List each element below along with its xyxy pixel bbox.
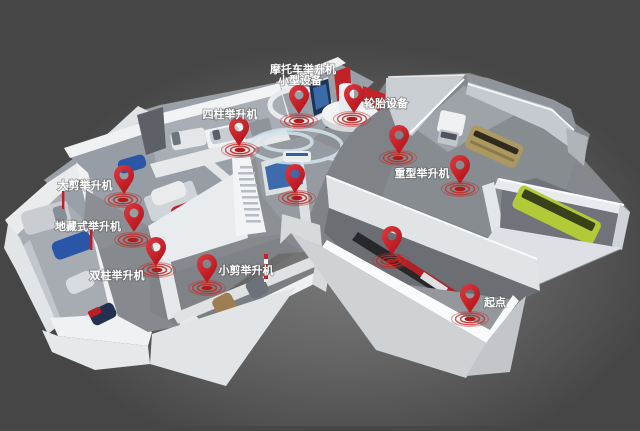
svg-text:摩托车举升机: 摩托车举升机 [270, 62, 336, 76]
svg-text:重型举升机: 重型举升机 [395, 166, 450, 180]
svg-text:起点: 起点 [483, 295, 506, 309]
svg-text:轮胎设备: 轮胎设备 [364, 96, 409, 110]
svg-text:地藏式举升机: 地藏式举升机 [55, 219, 121, 233]
svg-text:四柱举升机: 四柱举升机 [203, 107, 258, 121]
svg-text:大剪举升机: 大剪举升机 [58, 178, 113, 192]
svg-text:小剪举升机: 小剪举升机 [218, 263, 274, 277]
svg-text:小型设备: 小型设备 [277, 73, 323, 87]
svg-text:双柱举升机: 双柱举升机 [90, 268, 145, 282]
